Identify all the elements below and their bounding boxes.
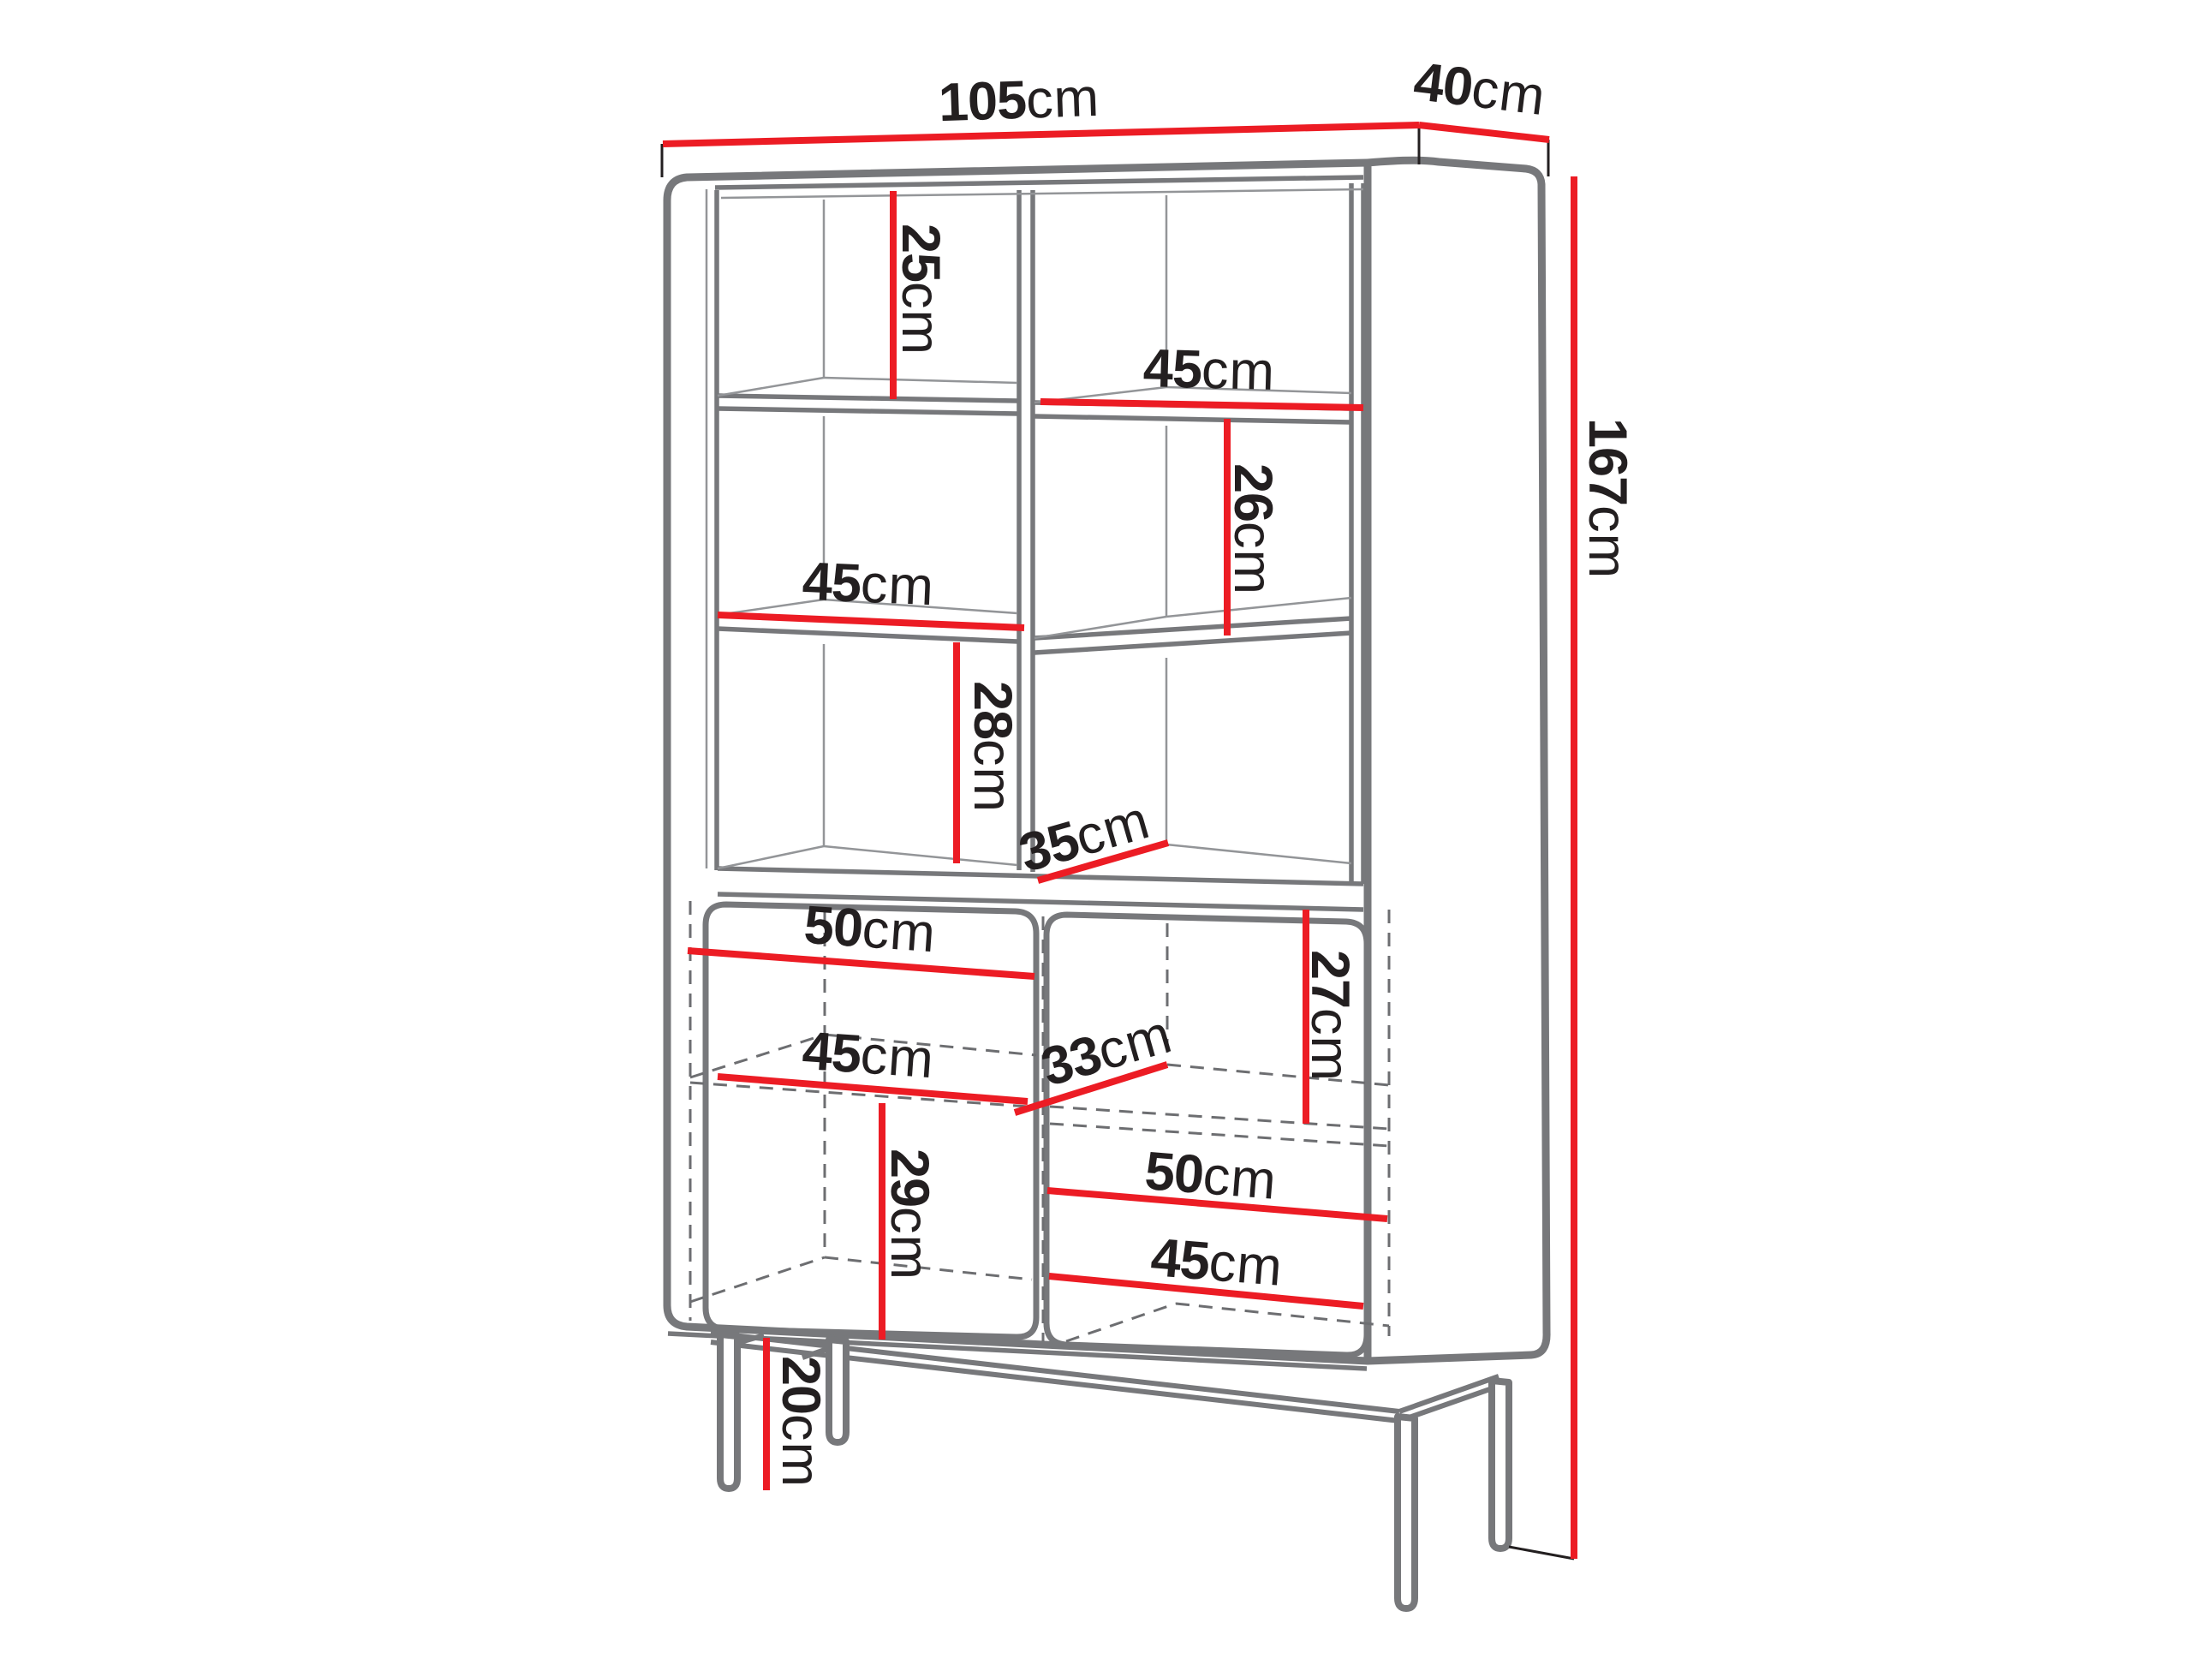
dimension-value-top-left-cubby-height: 25	[891, 224, 951, 282]
dimension-value-left-door-inner-width: 45	[801, 1021, 863, 1085]
dimension-unit-left-shelf-width: cm	[859, 554, 935, 618]
dimension-unit-leg-height: cm	[771, 1414, 831, 1488]
dimension-unit-right-door-shelf-width: cm	[1207, 1232, 1285, 1298]
dimension-value-right-door-inner-height: 27	[1300, 950, 1360, 1008]
dimension-label-overall-height: 167cm	[1577, 418, 1637, 579]
dimension-value-leg-height: 20	[771, 1356, 831, 1414]
dimension-label-right-cubby-height: 26cm	[1223, 463, 1283, 595]
back-right-leg	[1492, 1381, 1509, 1549]
front-left-leg	[720, 1334, 737, 1489]
dimension-label-leg-height: 20cm	[771, 1356, 831, 1488]
dimension-unit-top-depth: cm	[1469, 58, 1549, 127]
dimension-label-right-shelf-width: 45cm	[1142, 338, 1276, 402]
dimension-diagram-canvas: 105cm40cm167cm25cm45cm26cm45cm28cm35cm50…	[0, 0, 2212, 1659]
dimension-value-top-width: 105	[938, 70, 1028, 134]
dimension-unit-left-door-width: cm	[861, 898, 939, 964]
side-panel-panel	[1368, 160, 1547, 1361]
dimension-value-right-cubby-height: 26	[1223, 463, 1283, 522]
dimension-value-right-shelf-width: 45	[1142, 338, 1202, 400]
dimension-value-left-door-lower-height: 29	[879, 1149, 939, 1207]
dimension-value-left-cubby-height: 28	[963, 681, 1023, 739]
dimension-value-left-door-width: 50	[802, 895, 865, 959]
dimension-unit-right-shelf-width: cm	[1201, 340, 1276, 402]
dimension-unit-left-door-inner-width: cm	[859, 1024, 937, 1089]
dimension-label-right-door-inner-height: 27cm	[1300, 950, 1360, 1082]
furniture-dimension-diagram: 105cm40cm167cm25cm45cm26cm45cm28cm35cm50…	[0, 0, 2212, 1659]
back-left-leg	[829, 1340, 846, 1442]
dimension-value-right-door-inner-width: 50	[1142, 1141, 1205, 1205]
dimension-unit-top-left-cubby-height: cm	[891, 282, 951, 355]
dimension-value-right-door-shelf-width: 45	[1148, 1227, 1211, 1292]
dimension-unit-left-cubby-height: cm	[963, 739, 1023, 813]
dimension-unit-right-cubby-height: cm	[1223, 522, 1283, 595]
front-right-leg	[1398, 1417, 1415, 1608]
dimension-label-right-door-shelf-width: 45cm	[1148, 1227, 1285, 1298]
dimension-label-left-shelf-width: 45cm	[801, 552, 935, 618]
dimension-value-top-depth: 40	[1410, 51, 1476, 118]
dimension-label-left-door-inner-width: 45cm	[801, 1021, 937, 1090]
dimension-label-top-width: 105cm	[938, 68, 1100, 134]
dimension-unit-overall-height: cm	[1577, 505, 1637, 579]
dimension-label-left-door-lower-height: 29cm	[879, 1149, 939, 1280]
dimension-value-left-shelf-width: 45	[801, 552, 862, 614]
dimension-label-left-cubby-height: 28cm	[963, 681, 1023, 813]
dimension-label-left-door-width: 50cm	[802, 895, 939, 964]
dimension-unit-right-door-inner-width: cm	[1201, 1145, 1279, 1211]
dimension-label-right-door-inner-width: 50cm	[1142, 1141, 1279, 1211]
dimension-label-top-left-cubby-height: 25cm	[891, 224, 951, 355]
dimension-unit-top-width: cm	[1025, 68, 1100, 130]
dimension-unit-left-door-lower-height: cm	[879, 1207, 939, 1280]
dimension-value-overall-height: 167	[1577, 418, 1637, 505]
dimension-unit-right-door-inner-height: cm	[1300, 1008, 1360, 1082]
